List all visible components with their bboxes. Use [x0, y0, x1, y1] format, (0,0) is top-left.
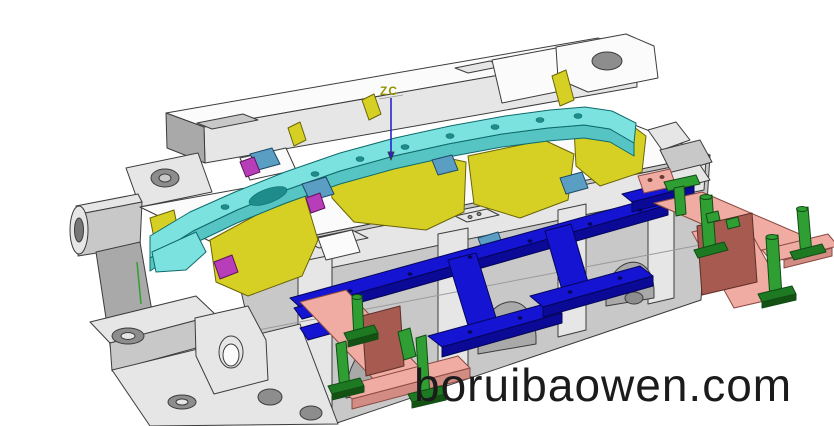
cad-viewport: ZC boruibaowen.com: [0, 0, 834, 426]
pad-dot: [477, 213, 481, 216]
slab-slot-inner: [176, 399, 188, 405]
slab-hole: [258, 389, 282, 405]
counterbore-hole-inner: [159, 174, 171, 182]
screw-dot: [618, 276, 623, 280]
screw-dot: [588, 222, 593, 226]
guide-pin-cap: [766, 235, 778, 240]
screw-dot: [518, 316, 523, 320]
screw-dot: [660, 175, 665, 179]
guide-pin-cap: [352, 295, 362, 300]
part-hole: [401, 145, 409, 150]
bolt-hole: [592, 52, 622, 70]
part-hole: [446, 134, 454, 139]
part-hole: [356, 157, 364, 162]
part-hole: [536, 118, 544, 123]
part-hole: [311, 172, 319, 177]
guide-pin-cap: [700, 195, 712, 200]
guide-pin-cap: [797, 207, 808, 212]
pillar-bore-inner: [223, 344, 239, 366]
rail-slot-inner: [121, 333, 135, 340]
guide-boss-bore: [75, 218, 84, 242]
side-hole: [625, 292, 643, 304]
clamp-bracket-leg: [674, 186, 686, 216]
watermark-text: boruibaowen.com: [414, 359, 792, 411]
part-hole: [221, 205, 229, 210]
screw-dot: [528, 239, 533, 243]
screw-dot: [408, 272, 413, 276]
screw-dot: [468, 255, 473, 259]
part-hole: [491, 125, 499, 130]
screw-dot: [638, 208, 643, 212]
axis-label: ZC: [380, 84, 398, 98]
pad-dot: [468, 216, 472, 219]
part-hole: [574, 114, 582, 119]
slab-hole: [300, 406, 322, 420]
screw-dot: [648, 178, 653, 182]
cad-screenshot: ZC boruibaowen.com: [0, 0, 834, 426]
screw-dot: [468, 330, 473, 334]
screw-dot: [568, 290, 573, 294]
